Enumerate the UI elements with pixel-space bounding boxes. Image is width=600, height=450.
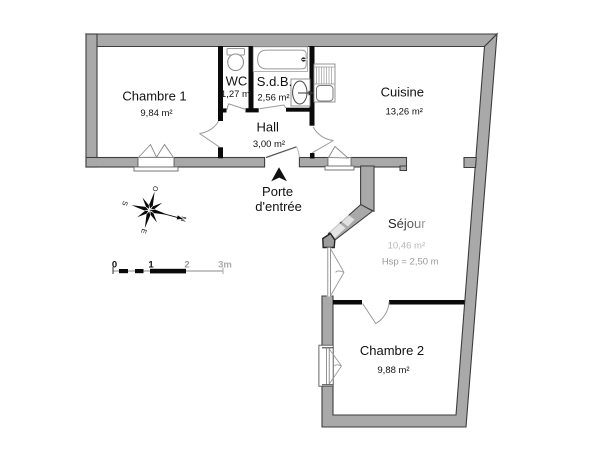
svg-text:0: 0 — [112, 260, 117, 271]
svg-text:2: 2 — [184, 260, 189, 271]
svg-text:3m: 3m — [218, 260, 232, 271]
svg-text:9,88 m²: 9,88 m² — [377, 365, 409, 376]
svg-text:Chambre 2: Chambre 2 — [360, 343, 424, 358]
svg-text:Séjour: Séjour — [388, 216, 426, 231]
svg-text:Cuisine: Cuisine — [381, 85, 424, 100]
svg-text:3,00 m²: 3,00 m² — [253, 139, 285, 150]
svg-text:13,26 m²: 13,26 m² — [385, 107, 423, 118]
svg-text:d'entrée: d'entrée — [255, 199, 302, 214]
svg-text:WC: WC — [226, 74, 248, 89]
svg-text:9,84 m²: 9,84 m² — [140, 108, 172, 119]
svg-text:1: 1 — [148, 260, 154, 271]
svg-text:Chambre 1: Chambre 1 — [122, 89, 186, 104]
svg-text:S.d.B.: S.d.B. — [257, 74, 292, 89]
svg-text:Hsp = 2,50 m: Hsp = 2,50 m — [382, 257, 439, 268]
svg-text:Porte: Porte — [262, 184, 293, 199]
svg-text:10,46 m²: 10,46 m² — [388, 241, 426, 252]
svg-text:2,56 m²: 2,56 m² — [257, 93, 289, 104]
svg-text:1,27 m²: 1,27 m² — [221, 89, 253, 100]
svg-text:Hall: Hall — [256, 120, 279, 135]
